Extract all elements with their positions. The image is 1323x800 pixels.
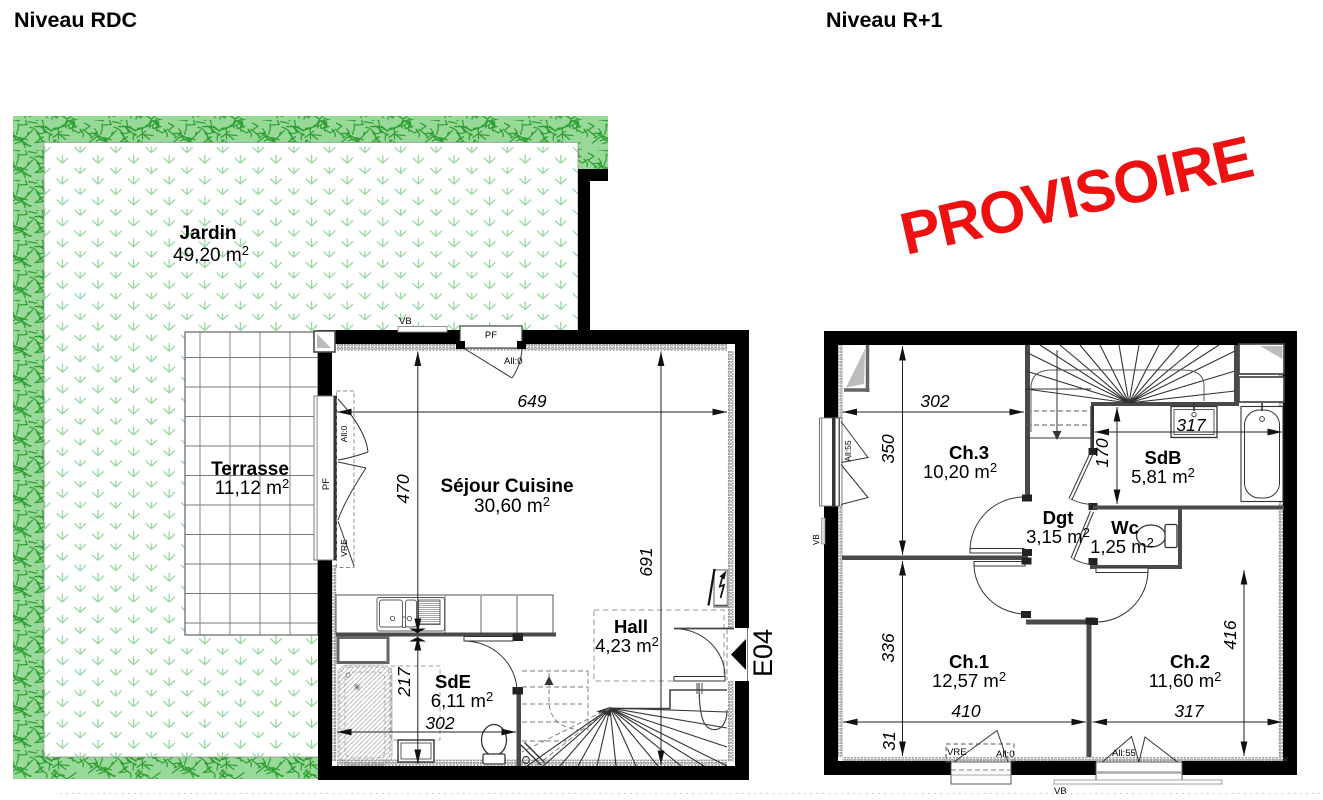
svg-text:Niveau R+1: Niveau R+1 <box>826 8 943 32</box>
svg-text:Séjour Cuisine: Séjour Cuisine <box>440 476 573 497</box>
svg-text:Ch.3: Ch.3 <box>949 442 989 463</box>
svg-text:350: 350 <box>878 434 898 463</box>
svg-text:VB: VB <box>1054 786 1067 797</box>
svg-text:Wc: Wc <box>1111 517 1139 538</box>
svg-text:4,23 m2: 4,23 m2 <box>595 634 659 656</box>
svg-text:VB: VB <box>812 534 821 545</box>
svg-text:Terrasse: Terrasse <box>211 459 289 480</box>
svg-text:VB: VB <box>399 316 412 327</box>
svg-text:317: 317 <box>1174 701 1204 721</box>
svg-text:VRE: VRE <box>339 539 349 557</box>
svg-text:PF: PF <box>485 330 497 341</box>
svg-text:All:0: All:0 <box>996 749 1014 760</box>
svg-text:All:0: All:0 <box>504 356 522 367</box>
svg-text:410: 410 <box>951 701 980 721</box>
svg-text:170: 170 <box>1092 438 1112 467</box>
svg-text:Ch.2: Ch.2 <box>1170 651 1210 672</box>
svg-text:SdB: SdB <box>1145 447 1182 468</box>
svg-text:10,20 m2: 10,20 m2 <box>923 460 997 482</box>
svg-text:11,60 m2: 11,60 m2 <box>1149 669 1222 691</box>
svg-text:470: 470 <box>393 474 413 503</box>
svg-text:49,20 m2: 49,20 m2 <box>173 243 249 266</box>
svg-text:30,60 m2: 30,60 m2 <box>474 494 550 517</box>
svg-text:217: 217 <box>394 666 414 697</box>
svg-text:302: 302 <box>425 713 454 733</box>
svg-text:All:55: All:55 <box>843 440 853 462</box>
svg-text:317: 317 <box>1176 415 1206 435</box>
svg-text:11,12 m2: 11,12 m2 <box>215 476 289 499</box>
svg-text:649: 649 <box>517 391 546 411</box>
svg-text:6,11 m2: 6,11 m2 <box>431 689 493 711</box>
svg-text:3,15 m2: 3,15 m2 <box>1026 525 1090 547</box>
svg-text:SdE: SdE <box>435 671 471 692</box>
svg-text:5,81 m2: 5,81 m2 <box>1131 465 1195 487</box>
svg-text:Hall: Hall <box>614 616 648 637</box>
svg-text:E04: E04 <box>748 629 778 677</box>
svg-text:691: 691 <box>636 547 656 576</box>
svg-text:Niveau RDC: Niveau RDC <box>14 8 137 32</box>
svg-text:VRE: VRE <box>947 747 967 758</box>
svg-text:336: 336 <box>878 633 898 662</box>
svg-text:302: 302 <box>920 391 949 411</box>
svg-text:416: 416 <box>1220 620 1240 649</box>
svg-text:All:0: All:0 <box>339 425 349 442</box>
svg-text:12,57 m2: 12,57 m2 <box>932 669 1006 691</box>
svg-text:Dgt: Dgt <box>1043 507 1074 528</box>
svg-text:1,25 m2: 1,25 m2 <box>1090 535 1154 557</box>
svg-text:Jardin: Jardin <box>179 223 236 244</box>
svg-text:All:55: All:55 <box>1112 748 1136 759</box>
svg-text:PROVISOIRE: PROVISOIRE <box>894 123 1258 268</box>
svg-text:PF: PF <box>321 478 332 490</box>
svg-text:31: 31 <box>879 731 899 750</box>
svg-text:Ch.1: Ch.1 <box>949 651 989 672</box>
